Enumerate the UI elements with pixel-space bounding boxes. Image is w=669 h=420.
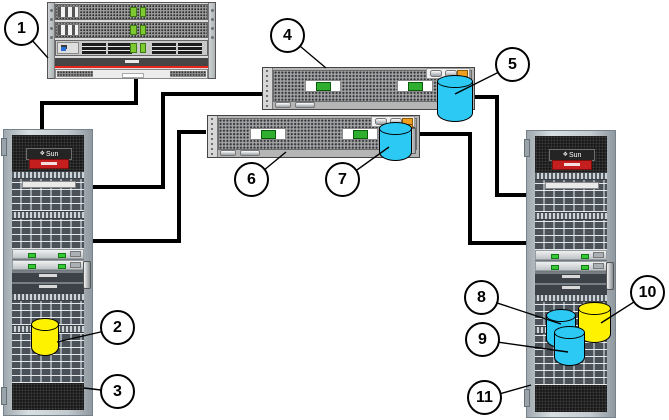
server-latch-green xyxy=(130,43,146,53)
server-rack-ear-right xyxy=(208,3,215,78)
rack-module-block xyxy=(535,272,607,294)
server-latch-green xyxy=(130,25,146,35)
green-indicator xyxy=(316,82,331,91)
array-control-column xyxy=(263,68,273,109)
sun-brand-text: Sun xyxy=(569,151,581,160)
array-drive-label xyxy=(342,128,378,140)
cable-left-rack-to-array6 xyxy=(89,132,206,241)
rack-module-block xyxy=(12,271,84,293)
cable-array4-to-right-rack xyxy=(474,97,528,195)
server-psu-row xyxy=(55,69,208,79)
rack-disk-shelf xyxy=(535,180,607,212)
callout-2: 2 xyxy=(100,310,135,345)
hardware-connection-diagram: ❖ Sun ❖ Su xyxy=(0,0,669,420)
model-badge xyxy=(552,160,592,170)
sun-logo-icon: ❖ xyxy=(563,151,568,160)
rack-bottom-vent xyxy=(12,383,84,410)
rack-hinge xyxy=(524,139,530,157)
rack-front: ❖ Sun xyxy=(535,136,607,412)
callout-6: 6 xyxy=(234,162,269,197)
database-cylinder-blue-7 xyxy=(379,122,412,161)
server-drive-bay xyxy=(152,43,176,54)
callout-10: 10 xyxy=(630,275,665,310)
rack-controller-row xyxy=(535,261,607,271)
callout-6-number: 6 xyxy=(247,171,256,189)
callout-11: 11 xyxy=(467,380,502,415)
green-led xyxy=(581,254,589,259)
callout-9-number: 9 xyxy=(478,331,487,349)
rack-hinge xyxy=(1,138,7,156)
callout-3-number: 3 xyxy=(113,383,122,401)
green-led xyxy=(58,253,66,258)
rack-door-handle xyxy=(83,261,91,289)
sun-brand-text: Sun xyxy=(46,150,58,159)
server-psu-left xyxy=(57,71,93,77)
callout-2-number: 2 xyxy=(113,319,122,337)
rack-controller-row xyxy=(12,249,84,259)
green-led xyxy=(58,264,66,269)
green-led xyxy=(551,254,559,259)
rack-slot-strip xyxy=(535,294,607,302)
array-drive-label xyxy=(250,128,286,140)
database-cylinder-blue-9 xyxy=(554,326,585,366)
server-latch-green xyxy=(130,7,146,17)
callout-10-number: 10 xyxy=(639,284,657,302)
storage-rack-right: ❖ Sun xyxy=(526,130,616,418)
cable-array6-to-right-rack xyxy=(419,134,528,243)
array-drive-label xyxy=(397,80,433,92)
server-fan-module-row xyxy=(55,4,208,20)
green-led xyxy=(551,265,559,270)
rack-slot-strip xyxy=(12,293,84,301)
callout-8-number: 8 xyxy=(477,289,486,307)
server-bezel-red-stripe xyxy=(55,58,208,68)
rack-bottom-vent xyxy=(535,385,607,412)
rack-slot-strip xyxy=(12,211,84,219)
green-indicator xyxy=(408,82,423,91)
callout-8: 8 xyxy=(464,280,499,315)
rack-slot-strip xyxy=(535,212,607,220)
server-drive-bay xyxy=(178,43,202,54)
callout-3: 3 xyxy=(100,374,135,409)
green-indicator xyxy=(261,130,276,139)
server-module xyxy=(57,6,79,18)
server-drive-bay xyxy=(82,43,106,54)
callout-7: 7 xyxy=(325,162,360,197)
server-psu-right xyxy=(170,71,206,77)
green-indicator xyxy=(353,130,368,139)
rack-top-vent: ❖ Sun xyxy=(12,135,84,171)
rack-disk-shelf xyxy=(12,179,84,211)
sun-logo-icon: ❖ xyxy=(40,150,45,159)
database-cylinder-blue-5 xyxy=(437,75,473,122)
rack-disk-shelf xyxy=(12,219,84,249)
green-led xyxy=(581,265,589,270)
array-bottom-latches xyxy=(220,150,260,156)
callout-1-number: 1 xyxy=(17,20,26,38)
rack-slot-strip xyxy=(535,172,607,180)
server-drive-bay xyxy=(108,43,132,54)
callout-4-number: 4 xyxy=(283,27,292,45)
array-drive-label xyxy=(305,80,341,92)
green-led xyxy=(28,253,36,258)
callout-7-number: 7 xyxy=(338,171,347,189)
model-badge xyxy=(29,159,69,169)
array-control-column xyxy=(208,116,218,157)
server-drive-row xyxy=(55,40,208,56)
cable-server-to-left-rack xyxy=(42,79,136,131)
rack-front: ❖ Sun xyxy=(12,135,84,410)
callout-9: 9 xyxy=(465,322,500,357)
shelf-label xyxy=(22,181,76,188)
rack-door-handle xyxy=(606,262,614,290)
rack-controller-row xyxy=(12,260,84,270)
rack-hinge xyxy=(524,389,530,407)
storage-rack-left: ❖ Sun xyxy=(3,129,93,416)
array-bottom-latches xyxy=(275,102,315,108)
shelf-label xyxy=(545,182,599,189)
rack-slot-strip xyxy=(12,171,84,179)
server-rack-ear-left xyxy=(48,3,55,78)
server-chassis xyxy=(47,2,216,79)
callout-11-number: 11 xyxy=(476,389,493,407)
server-fan-module-row xyxy=(55,22,208,38)
rack-controller-row xyxy=(535,250,607,260)
server-module xyxy=(57,24,79,36)
callout-1: 1 xyxy=(4,11,39,46)
green-led xyxy=(28,264,36,269)
rack-disk-shelf xyxy=(535,220,607,250)
callout-5: 5 xyxy=(495,47,530,82)
callout-4: 4 xyxy=(270,18,305,53)
rack-top-vent: ❖ Sun xyxy=(535,136,607,172)
database-cylinder-yellow-2 xyxy=(31,318,59,356)
rack-hinge xyxy=(1,387,7,405)
callout-5-number: 5 xyxy=(508,56,517,74)
server-io-ports xyxy=(57,42,79,54)
